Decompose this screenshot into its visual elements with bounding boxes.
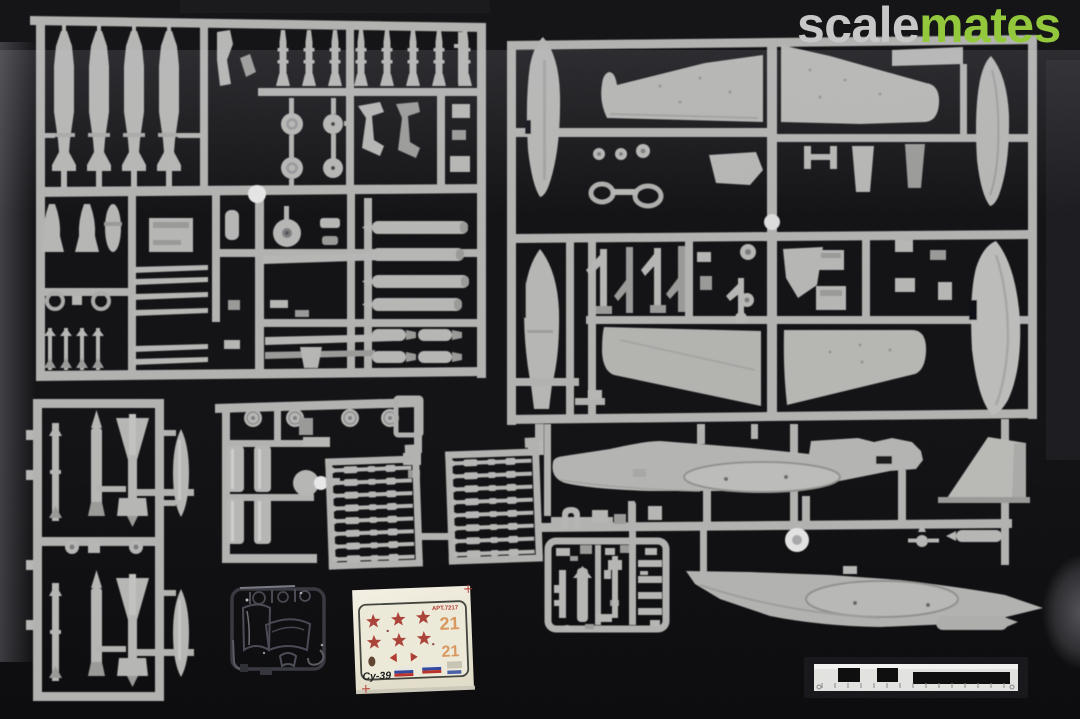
- svg-text:scalemates: scalemates: [797, 0, 1061, 53]
